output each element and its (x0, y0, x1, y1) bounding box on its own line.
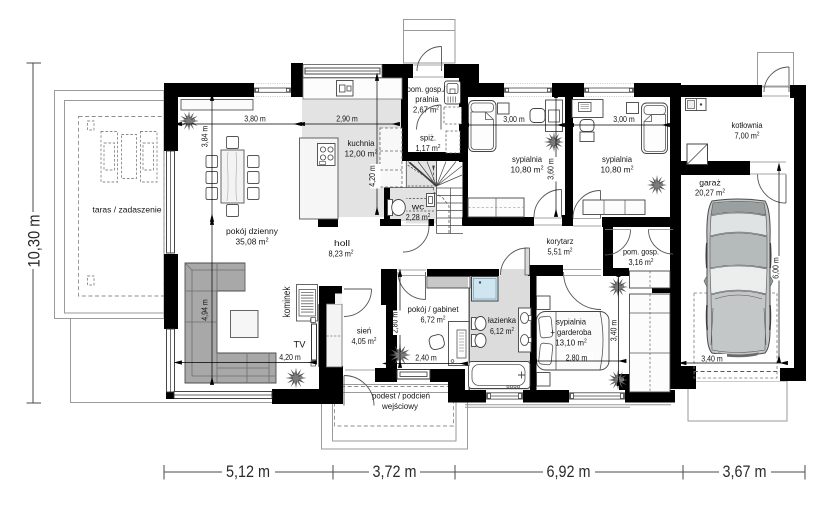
svg-text:kotłownia: kotłownia (732, 120, 763, 130)
svg-text:kominek: kominek (282, 286, 293, 318)
svg-text:5,51 m2: 5,51 m2 (548, 247, 573, 257)
svg-text:2,40 m: 2,40 m (415, 354, 437, 363)
svg-text:6,12 m2: 6,12 m2 (490, 326, 514, 336)
svg-text:35,08 m2: 35,08 m2 (236, 237, 269, 247)
svg-text:4,20 m: 4,20 m (279, 353, 301, 362)
svg-text:4,05 m2: 4,05 m2 (352, 336, 377, 346)
svg-text:20,27 m2: 20,27 m2 (695, 187, 725, 197)
svg-text:10,30 m: 10,30 m (25, 215, 44, 268)
svg-text:podest / podcień: podest / podcień (372, 391, 430, 401)
svg-text:2,80 m: 2,80 m (566, 354, 588, 363)
svg-text:wejściowy: wejściowy (381, 401, 419, 411)
svg-text:holl: holl (334, 238, 350, 248)
svg-text:wc: wc (411, 202, 425, 212)
svg-text:pom. gosp./: pom. gosp./ (407, 84, 446, 94)
svg-text:3,40 m: 3,40 m (701, 355, 723, 364)
svg-text:10,80 m2: 10,80 m2 (601, 164, 634, 174)
svg-text:2,28 m2: 2,28 m2 (406, 212, 431, 222)
svg-text:7,00 m2: 7,00 m2 (735, 131, 760, 141)
svg-text:10,80 m2: 10,80 m2 (511, 164, 544, 174)
svg-text:taras / zadaszenie: taras / zadaszenie (93, 204, 162, 214)
svg-text:3,16 m2: 3,16 m2 (629, 257, 654, 267)
svg-text:pokój / gabinet: pokój / gabinet (408, 304, 460, 314)
svg-text:4,20 m: 4,20 m (368, 165, 377, 187)
svg-text:1,17 m2: 1,17 m2 (416, 143, 441, 153)
svg-text:TV: TV (294, 340, 307, 351)
svg-text:3,40 m: 3,40 m (610, 320, 619, 342)
svg-text:sypialnia: sypialnia (512, 154, 542, 164)
svg-text:3,67 m: 3,67 m (723, 462, 767, 481)
svg-text:sypialnia: sypialnia (602, 154, 632, 164)
svg-text:5,12 m: 5,12 m (226, 462, 270, 481)
svg-text:+ garderoba: + garderoba (551, 327, 592, 337)
svg-text:12,00 m2: 12,00 m2 (345, 149, 378, 159)
svg-text:3,00 m: 3,00 m (503, 115, 525, 124)
svg-text:3,00 m: 3,00 m (613, 115, 635, 124)
svg-text:6,72 m2: 6,72 m2 (421, 315, 446, 325)
svg-text:3,72 m: 3,72 m (373, 462, 417, 481)
svg-text:spiż.: spiż. (420, 133, 436, 143)
svg-text:kuchnia: kuchnia (348, 138, 375, 148)
svg-text:łazienka: łazienka (488, 315, 516, 325)
svg-text:2,90 m: 2,90 m (336, 115, 358, 124)
svg-text:korytarz: korytarz (547, 236, 574, 246)
svg-text:sypialnia: sypialnia (556, 316, 586, 326)
svg-text:4,94 m: 4,94 m (201, 299, 210, 321)
svg-text:6,92 m: 6,92 m (547, 462, 591, 481)
svg-text:3,80 m: 3,80 m (244, 115, 266, 124)
svg-text:2,80 m: 2,80 m (391, 312, 400, 334)
svg-text:3,60 m: 3,60 m (547, 158, 556, 180)
svg-text:3,84 m: 3,84 m (201, 126, 210, 148)
svg-text:2,67 m2: 2,67 m2 (413, 104, 439, 114)
svg-text:garaż: garaż (699, 178, 721, 188)
svg-text:6,00 m: 6,00 m (772, 257, 781, 279)
svg-text:pom. gosp.: pom. gosp. (623, 246, 659, 256)
svg-text:8,23 m2: 8,23 m2 (329, 249, 354, 259)
svg-text:13,10 m2: 13,10 m2 (555, 338, 587, 348)
svg-text:pokój dzienny: pokój dzienny (226, 226, 279, 236)
svg-text:pralnia: pralnia (415, 94, 439, 104)
svg-text:sień: sień (357, 326, 372, 336)
